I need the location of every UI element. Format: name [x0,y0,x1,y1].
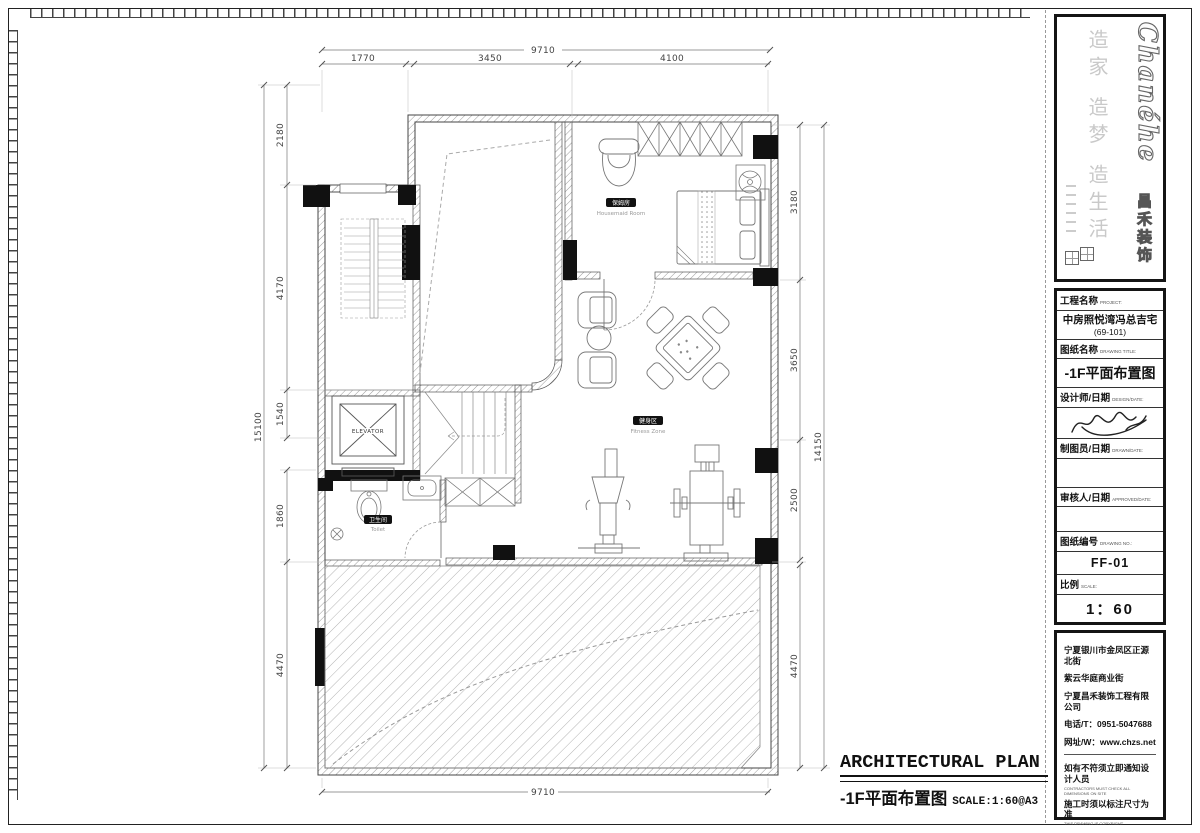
address-line1: 宁夏银川市金凤区正源北街 [1064,645,1156,666]
seal-stamp-icon [1065,251,1079,265]
svg-text:3650: 3650 [790,348,800,372]
logo-box: Chanéhe 昌禾装饰 造家 造梦 造生活 [1054,14,1166,282]
drawing-title-label: 图纸名称 [1060,342,1098,356]
toilet-label-en: Toilet [370,527,386,533]
shaft-stair [341,219,405,318]
housemaid-label-en: Housemaid Room [597,211,645,217]
plan-caption-scale: SCALE:1:60@A3 [952,796,1038,808]
drawing-no-label-en: DRAWING NO.: [1100,541,1132,546]
svg-text:1770: 1770 [351,54,375,64]
approver-label-row: 审核人/日期 APPROVED/DATE: [1057,487,1163,508]
designer-label: 设计师/日期 [1060,390,1110,404]
note2-en: THIS DRAWING IS COPYRIGHT [1064,821,1156,826]
svg-text:2500: 2500 [790,488,800,512]
project-name-row: 中房照悦湾冯总吉宅 (69-101) [1057,311,1163,339]
brand-company-cn: 昌禾装饰 [1134,193,1155,265]
address-line2: 紫云华庭商业街 [1064,673,1156,684]
website: 网址/W：www.chzs.net [1064,737,1156,748]
project-label-row: 工程名称 PROJECT: [1057,291,1163,311]
drafter-label-row: 制图员/日期 DRAWN/DATE: [1057,438,1163,459]
bed [677,189,769,266]
floor-plan-canvas: ELEVATOR [0,0,1200,833]
drafter-label-en: DRAWN/DATE: [1112,448,1143,453]
scale-label-en: SCALE: [1081,584,1097,589]
title-block: 工程名称 PROJECT: 中房照悦湾冯总吉宅 (69-101) 图纸名称 DR… [1054,288,1166,625]
svg-text:14150: 14150 [814,432,824,462]
elevator-label: ELEVATOR [352,429,384,435]
elevator [332,396,404,476]
footer-block: 宁夏银川市金凤区正源北街 紫云华庭商业街 宁夏昌禾装饰工程有限公司 电话/T：0… [1054,630,1166,820]
central-stair [425,392,506,474]
terrace [325,566,760,768]
fitness-label-cn: 健身区 [639,417,657,425]
brand-logo: Chanéhe [1132,22,1162,163]
project-label: 工程名称 [1060,293,1098,307]
game-table [620,280,756,416]
svg-text:4470: 4470 [276,653,286,677]
designer-label-en: DESIGN/DATE: [1112,397,1143,402]
gym-machine-b [670,445,745,561]
company-name: 宁夏昌禾装饰工程有限公司 [1064,691,1156,712]
drawing-title-value: -1F平面布置图 [1057,359,1163,387]
svg-text:2180: 2180 [276,123,286,147]
drawing-no-value: FF-01 [1057,552,1163,574]
scale-label-row: 比例 SCALE: [1057,574,1163,595]
approver-label: 审核人/日期 [1060,490,1110,504]
approver-empty-cell [1057,507,1163,531]
svg-text:3180: 3180 [790,190,800,214]
scale-value: 1：60 [1057,595,1163,622]
plan-caption-en: ARCHITECTURAL PLAN [840,752,1048,773]
svg-text:1860: 1860 [276,504,286,528]
drafter-label: 制图员/日期 [1060,441,1110,455]
tub-chair [599,139,639,186]
svg-text:4170: 4170 [276,276,286,300]
svg-text:9710: 9710 [531,788,555,798]
approver-label-en: APPROVED/DATE: [1112,497,1151,502]
note2-cn: 施工时须以标注尺寸为准 THIS DRAWING IS COPYRIGHT [1064,799,1156,826]
project-label-en: PROJECT: [1100,300,1122,305]
void-slope-line [420,140,550,373]
svg-text:1540: 1540 [276,402,286,426]
svg-text:3450: 3450 [478,54,502,64]
project-unit: (69-101) [1094,327,1126,337]
wardrobe [638,122,742,156]
fitness-label-en: Fitness Zone [631,429,666,435]
project-name: 中房照悦湾冯总吉宅 [1063,312,1158,327]
designer-label-row: 设计师/日期 DESIGN/DATE: [1057,387,1163,408]
svg-text:15100: 15100 [254,412,264,442]
armchair-pair [578,292,616,388]
drawing-no-label-row: 图纸编号 DRAWING NO.: [1057,531,1163,552]
seal-stamp-icon [1080,247,1094,261]
drafter-empty-cell [1057,459,1163,487]
note1-en: CONTRACTORS MUST CHECK ALL DIMENSIONS ON… [1064,786,1156,796]
note1-cn: 如有不符须立即通知设计人员 CONTRACTORS MUST CHECK ALL… [1064,763,1156,795]
housemaid-label-cn: 保姆房 [612,199,630,207]
svg-text:4100: 4100 [660,54,684,64]
mini-calligraphy [1066,185,1076,237]
phone: 电话/T：0951-5047688 [1064,719,1156,730]
gym-machine-a [578,449,640,553]
toilet-label-cn: 卫生间 [369,516,387,524]
designer-signature-cell [1057,408,1163,438]
drawing-title-label-row: 图纸名称 DRAWING TITLE: [1057,339,1163,360]
plan-caption-rule [840,775,1048,782]
plan-caption: ARCHITECTURAL PLAN -1F平面布置图 SCALE:1:60@A… [840,752,1048,809]
svg-text:4470: 4470 [790,654,800,678]
designer-signature [1066,408,1154,438]
stair-cabinet [445,478,515,506]
svg-text:9710: 9710 [531,46,555,56]
brand-tagline: 造家 造梦 造生活 [1083,29,1112,245]
plan-caption-cn: -1F平面布置图 [840,785,947,809]
drawing-no-label: 图纸编号 [1060,534,1098,548]
interior-walls [325,122,762,566]
footer-divider [1064,754,1156,755]
scale-label: 比例 [1060,577,1079,591]
drawing-title-label-en: DRAWING TITLE: [1100,349,1136,354]
